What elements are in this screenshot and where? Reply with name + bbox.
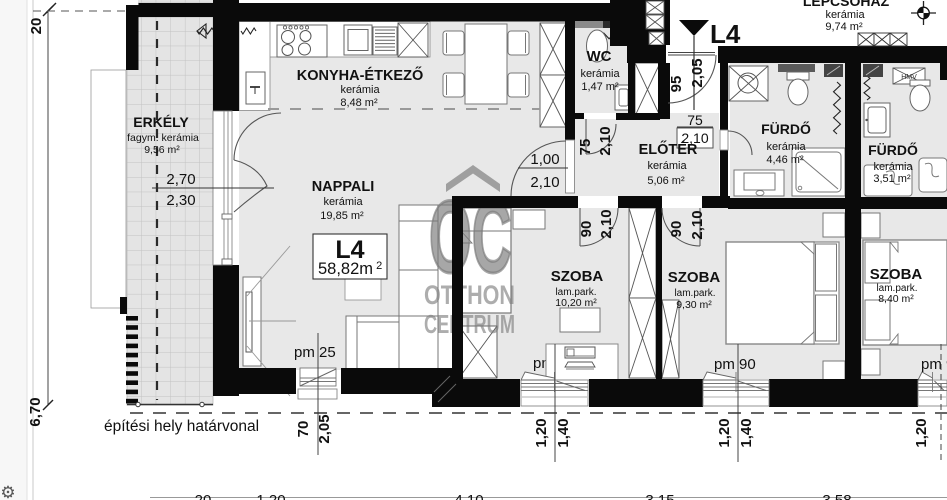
svg-text:1,20: 1,20 [716,418,733,447]
svg-text:1,20: 1,20 [533,418,550,447]
svg-text:10,20 m²: 10,20 m² [555,297,597,309]
svg-text:2,05: 2,05 [689,58,706,87]
svg-text:6,70: 6,70 [27,397,44,426]
svg-text:építési hely határvonal: építési hely határvonal [104,418,259,435]
svg-text:ERKÉLY: ERKÉLY [133,114,189,130]
svg-text:SZOBA: SZOBA [551,268,604,285]
svg-text:3,51 m²: 3,51 m² [873,173,911,185]
svg-text:90: 90 [578,221,595,238]
svg-text:2,05: 2,05 [316,414,333,443]
svg-text:OTTHON: OTTHON [424,280,515,310]
svg-text:SZOBA: SZOBA [870,266,923,283]
svg-text:9,56 m²: 9,56 m² [144,144,180,156]
svg-text:9,74 m²: 9,74 m² [825,21,863,33]
svg-text:FÜRDŐ: FÜRDŐ [761,120,811,137]
svg-text:1,20: 1,20 [256,492,285,500]
svg-text:8,40 m²: 8,40 m² [878,293,914,305]
svg-text:20: 20 [28,18,45,35]
svg-text:pm 90: pm 90 [714,356,756,373]
svg-text:3,58: 3,58 [822,492,851,500]
svg-text:75: 75 [577,139,594,156]
svg-text:4,10: 4,10 [454,492,483,500]
svg-text:1,00: 1,00 [530,151,559,168]
svg-text:20: 20 [195,492,212,500]
svg-text:WC: WC [587,48,612,65]
svg-text:L4: L4 [710,19,741,49]
svg-text:⚙: ⚙ [0,483,15,500]
svg-text:58,82m 2: 58,82m 2 [318,260,382,278]
svg-text:CENTRUM: CENTRUM [424,309,515,339]
svg-text:KONYHA-ÉTKEZŐ: KONYHA-ÉTKEZŐ [297,66,423,84]
svg-text:75: 75 [687,112,703,128]
svg-text:1,47 m²: 1,47 m² [581,81,619,93]
svg-text:4,46 m²: 4,46 m² [766,154,804,166]
svg-text:lam.park.: lam.park. [674,288,715,299]
svg-text:ELŐTÉR: ELŐTÉR [639,140,698,158]
svg-text:kerámia: kerámia [340,84,380,96]
svg-text:70: 70 [295,421,312,438]
svg-text:kerámia: kerámia [873,161,913,173]
svg-text:1,40: 1,40 [555,418,572,447]
svg-text:19,85 m²: 19,85 m² [320,210,364,222]
svg-text:2,10: 2,10 [598,209,615,238]
svg-text:pm 9: pm 9 [921,356,947,373]
svg-text:9,30 m²: 9,30 m² [676,299,712,311]
svg-text:2,30: 2,30 [166,192,195,209]
svg-text:90: 90 [668,221,685,238]
svg-text:2,10: 2,10 [530,174,559,191]
svg-text:5,06 m²: 5,06 m² [647,175,685,187]
svg-text:SZOBA: SZOBA [668,269,721,286]
svg-text:NAPPALI: NAPPALI [312,179,375,195]
svg-text:8,48 m²: 8,48 m² [340,97,378,109]
svg-text:1,40: 1,40 [738,418,755,447]
svg-text:2,70: 2,70 [166,171,195,188]
svg-text:kerámia: kerámia [323,196,363,208]
svg-text:2,10: 2,10 [689,210,706,239]
svg-text:2,10: 2,10 [597,126,614,155]
svg-text:LÉPCSŐHÁZ: LÉPCSŐHÁZ [803,0,890,9]
svg-text:FÜRDŐ: FÜRDŐ [868,141,918,158]
svg-text:pm 25: pm 25 [294,344,336,361]
svg-text:1,20: 1,20 [913,418,930,447]
svg-text:kerámia: kerámia [766,141,806,153]
svg-text:3,15: 3,15 [645,492,674,500]
svg-text:95: 95 [668,76,685,93]
svg-text:kerámia: kerámia [647,160,687,172]
svg-text:fagym. kerámia: fagym. kerámia [127,132,199,144]
svg-text:kerámia: kerámia [580,68,620,80]
svg-text:kerámia: kerámia [825,9,865,21]
